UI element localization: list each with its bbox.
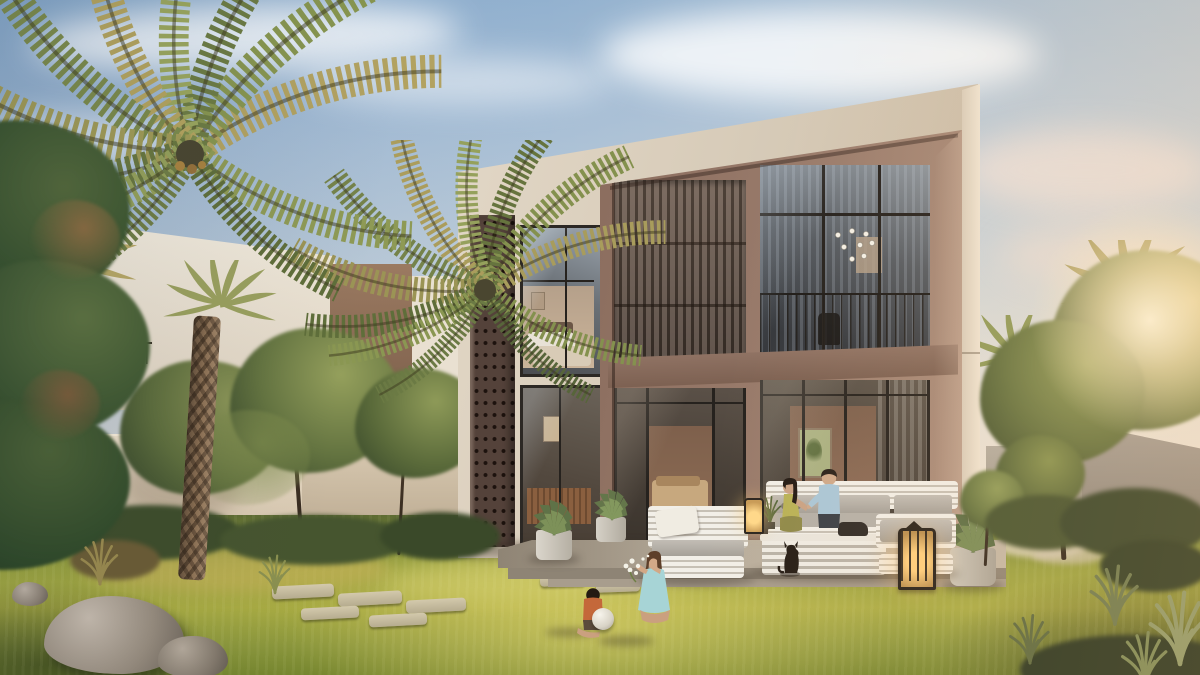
scene — [0, 0, 1200, 675]
vignette — [0, 0, 1200, 675]
